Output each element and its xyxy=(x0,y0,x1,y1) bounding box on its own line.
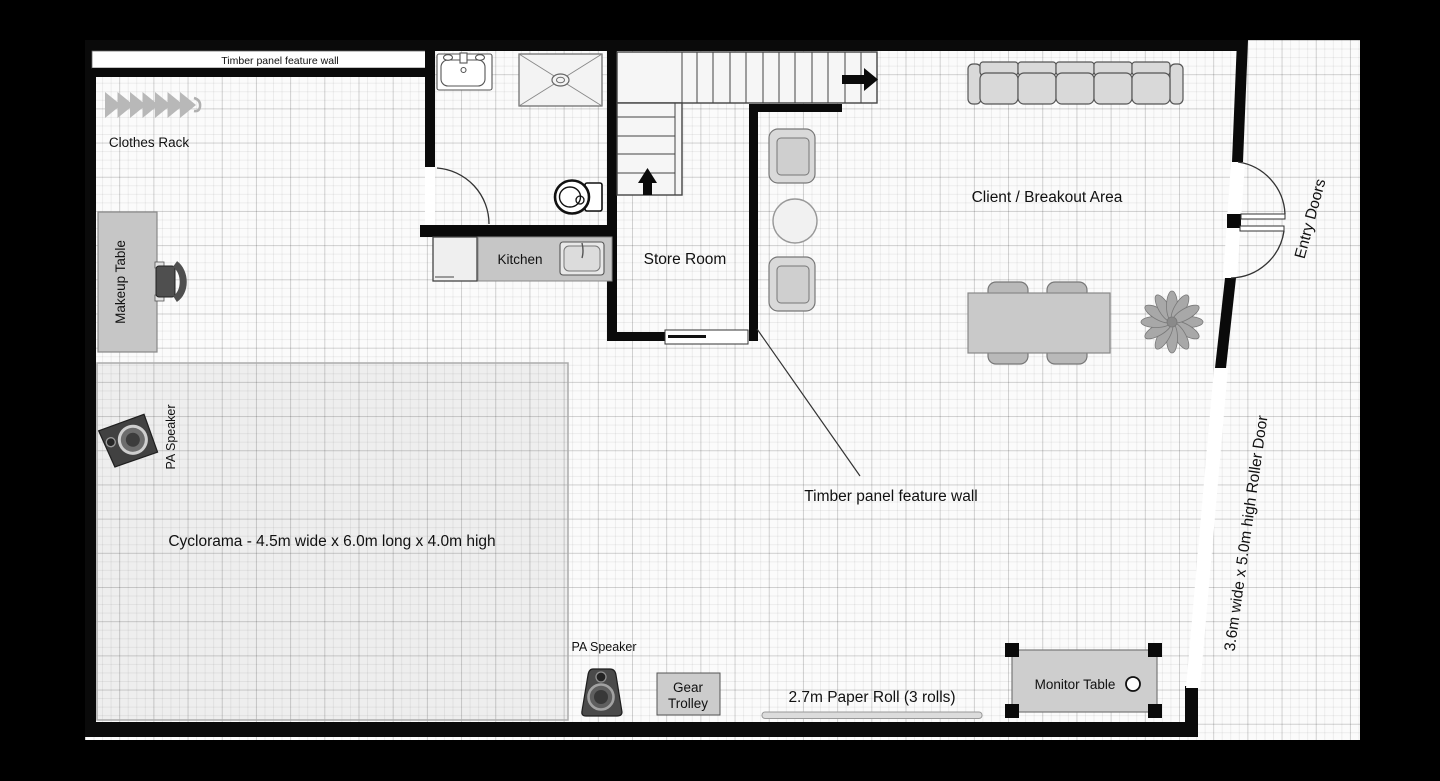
client-area-label: Client / Breakout Area xyxy=(972,189,1123,206)
makeup-table-label: Makeup Table xyxy=(113,240,128,324)
gear-trolley-label-line1: Gear xyxy=(673,680,704,695)
store-wall-top xyxy=(749,104,842,112)
kitchen-label: Kitchen xyxy=(497,252,542,267)
dining-set xyxy=(968,282,1110,364)
plant xyxy=(1141,291,1203,353)
cyclorama-label: Cyclorama - 4.5m wide x 6.0m long x 4.0m… xyxy=(168,533,495,550)
store-room-label: Store Room xyxy=(644,251,727,268)
dining-table xyxy=(968,293,1110,353)
wall-right-mid xyxy=(1215,278,1236,368)
fridge xyxy=(433,237,477,281)
wall-top xyxy=(85,40,1245,51)
annotation-leader-line xyxy=(757,329,860,476)
roller-door-label: 3.6m wide x 5.0m high Roller Door xyxy=(1222,414,1272,652)
kitchen-sink xyxy=(560,242,604,275)
floor-plan-drawing: Cyclorama - 4.5m wide x 6.0m long x 4.0m… xyxy=(85,40,1360,740)
sofa xyxy=(968,62,1183,104)
stair-store-wall-left xyxy=(607,40,617,341)
kitchen-wall xyxy=(420,225,615,237)
entry-doors-label: Entry Doors xyxy=(1292,177,1330,261)
gear-trolley-label-line2: Trolley xyxy=(668,696,708,711)
monitor-table-label: Monitor Table xyxy=(1035,677,1116,692)
store-wall-right xyxy=(749,104,758,341)
bathroom-vanity xyxy=(437,53,492,90)
entry-door-mullion xyxy=(1227,214,1241,228)
clothes-rack-label: Clothes Rack xyxy=(109,135,190,150)
wall-right-upper xyxy=(1232,40,1248,162)
wall-bottom-right-return xyxy=(1185,686,1198,730)
store-wall-bottom xyxy=(607,332,668,341)
feature-wall-top xyxy=(92,68,427,77)
side-table xyxy=(773,199,817,243)
armchair-2 xyxy=(769,257,815,311)
bathroom-door-opening xyxy=(425,167,435,225)
gear-trolley: Gear Trolley xyxy=(657,673,720,715)
paper-roll-label: 2.7m Paper Roll (3 rolls) xyxy=(788,689,955,706)
feature-wall-annotation-label: Timber panel feature wall xyxy=(804,488,977,505)
staircase xyxy=(617,52,878,195)
pa-speaker-bottom-label: PA Speaker xyxy=(571,640,636,654)
bathroom-door-swing xyxy=(437,168,489,224)
wall-left xyxy=(85,40,96,737)
makeup-table: Makeup Table xyxy=(98,212,183,352)
clothes-rack: Clothes Rack xyxy=(105,92,200,150)
shower xyxy=(519,54,602,106)
grid-paper: Cyclorama - 4.5m wide x 6.0m long x 4.0m… xyxy=(85,40,1360,740)
monitor-table-marker xyxy=(1126,677,1140,691)
roller-door-opening xyxy=(1186,368,1228,688)
kitchen-unit: Kitchen xyxy=(433,237,612,281)
pa-speaker-bottom xyxy=(582,669,622,716)
wall-bottom xyxy=(85,722,1198,737)
toilet xyxy=(555,181,602,214)
monitor-table: Monitor Table xyxy=(1005,643,1162,718)
floor-plan-canvas: Cyclorama - 4.5m wide x 6.0m long x 4.0m… xyxy=(0,0,1440,781)
bathroom-wall-left xyxy=(425,40,435,167)
paper-roll: 2.7m Paper Roll (3 rolls) xyxy=(762,689,982,719)
pa-speaker-top-label: PA Speaker xyxy=(164,404,178,469)
armchair-1 xyxy=(769,129,815,183)
feature-wall-top-label: Timber panel feature wall xyxy=(221,55,339,67)
store-sliding-door-panel xyxy=(668,335,706,338)
makeup-chair xyxy=(155,262,183,301)
